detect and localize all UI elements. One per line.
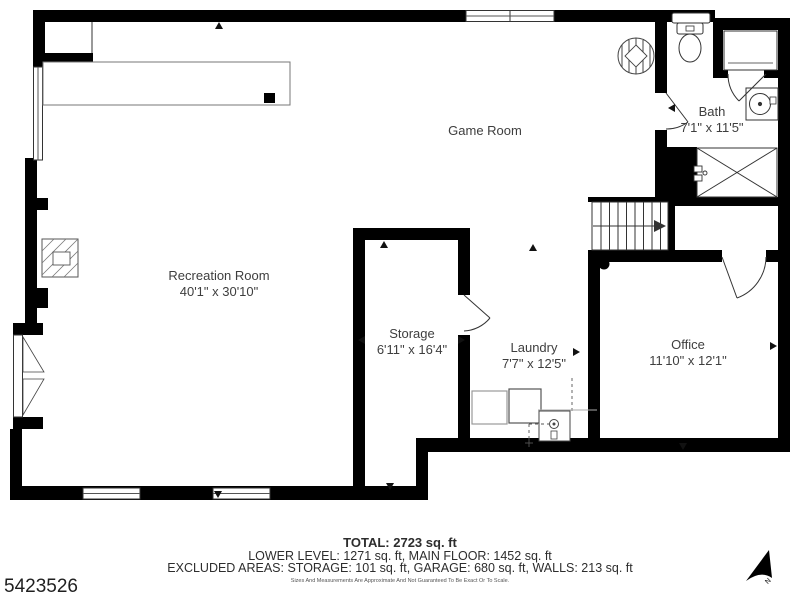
storage-door-icon	[464, 295, 490, 331]
bar-counter-icon	[43, 62, 290, 105]
office-door-icon	[722, 257, 766, 298]
room-label-bath: Bath 7'1" x 11'5"	[680, 104, 743, 136]
floorplan-page: Game Room Recreation Room 40'1" x 30'10"…	[0, 0, 800, 600]
room-label-storage: Storage 6'11" x 16'4"	[377, 326, 447, 358]
room-label-recreation-room: Recreation Room 40'1" x 30'10"	[168, 268, 269, 300]
room-dims: 7'1" x 11'5"	[680, 120, 743, 136]
laundry-sink-icon	[539, 411, 570, 441]
room-dims: 7'7" x 12'5"	[502, 356, 566, 372]
stairs-icon	[592, 202, 668, 250]
room-label-laundry: Laundry 7'7" x 12'5"	[502, 340, 566, 372]
top-double-window-icon	[466, 11, 554, 22]
dryer-icon	[509, 389, 541, 423]
room-label-game-room: Game Room	[448, 123, 522, 139]
room-name: Game Room	[448, 123, 522, 139]
room-dims: 40'1" x 30'10"	[168, 284, 269, 300]
room-name: Storage	[377, 326, 447, 342]
left-upper-window-icon	[34, 67, 43, 160]
room-name: Office	[649, 337, 727, 353]
room-name: Recreation Room	[168, 268, 269, 284]
sink-vanity-icon	[746, 88, 778, 120]
bottom-window-left-icon	[83, 488, 140, 499]
bottom-window-right-icon	[213, 488, 270, 499]
tub-icon	[694, 148, 777, 197]
floorplan-drawing	[0, 0, 800, 600]
spa-icon	[618, 38, 654, 74]
room-name: Bath	[680, 104, 743, 120]
room-dims: 6'11" x 16'4"	[377, 342, 447, 358]
column-dot	[599, 259, 610, 270]
listing-id: 5423526	[4, 576, 78, 598]
toilet-icon	[672, 13, 710, 62]
fireplace-icon	[42, 239, 78, 277]
disclaimer-text: Sizes And Measurements Are Approximate A…	[0, 578, 800, 584]
room-label-office: Office 11'10" x 12'1"	[649, 337, 727, 369]
washer-icon	[472, 391, 507, 424]
excluded-areas-text: EXCLUDED AREAS: STORAGE: 101 sq. ft, GAR…	[0, 561, 800, 575]
total-area-text: TOTAL: 2723 sq. ft	[0, 535, 800, 550]
room-dims: 11'10" x 12'1"	[649, 353, 727, 369]
bay-window-icon	[14, 335, 45, 417]
shower-icon	[724, 31, 777, 70]
north-arrow-icon	[738, 545, 788, 595]
room-name: Laundry	[502, 340, 566, 356]
